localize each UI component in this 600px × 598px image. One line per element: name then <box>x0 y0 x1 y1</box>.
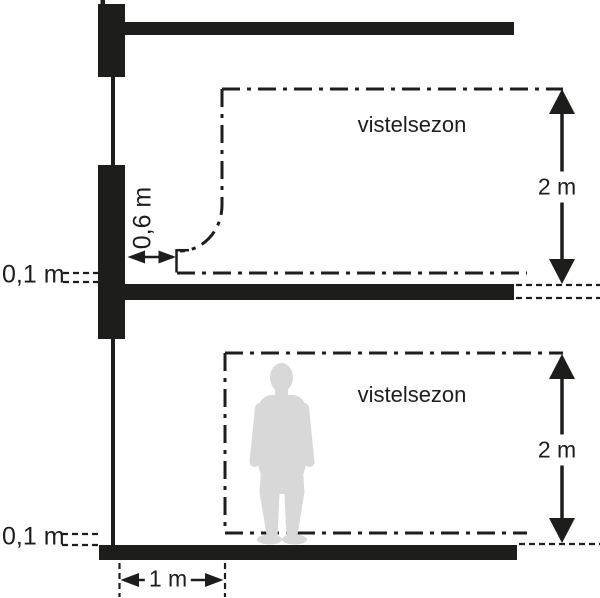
upper-window-line <box>111 76 115 166</box>
upper-zone-label: vistelsezon <box>358 114 467 136</box>
upper-wall-section <box>98 4 125 77</box>
lower-wall-line <box>111 338 115 546</box>
zone-offset-bracket <box>177 249 190 273</box>
lower-zone-label: vistelsezon <box>358 384 467 406</box>
window-offset-dimension-arrow <box>128 251 177 264</box>
lower-floor-clearance-label: 0,1 m <box>2 525 65 550</box>
upper-floor-clearance-label: 0,1 m <box>2 263 65 288</box>
ceiling-slab <box>125 22 514 35</box>
middle-wall-section <box>98 165 125 339</box>
upper-floor-slab <box>125 284 514 300</box>
door-clearance-label: 1 m <box>145 567 191 592</box>
vistelsezon-section-diagram: vistelsezon vistelsezon 2 m 2 m 0,1 m 0,… <box>0 0 600 598</box>
window-wall-clearance-label: 0,6 m <box>131 187 156 250</box>
ground-floor-slab <box>99 545 517 560</box>
upper-zone-left-boundary <box>180 89 222 251</box>
diagram-canvas <box>0 0 600 598</box>
person-silhouette-icon <box>255 363 310 545</box>
upper-zone-height-label: 2 m <box>535 172 579 203</box>
lower-zone-height-label: 2 m <box>535 435 579 466</box>
